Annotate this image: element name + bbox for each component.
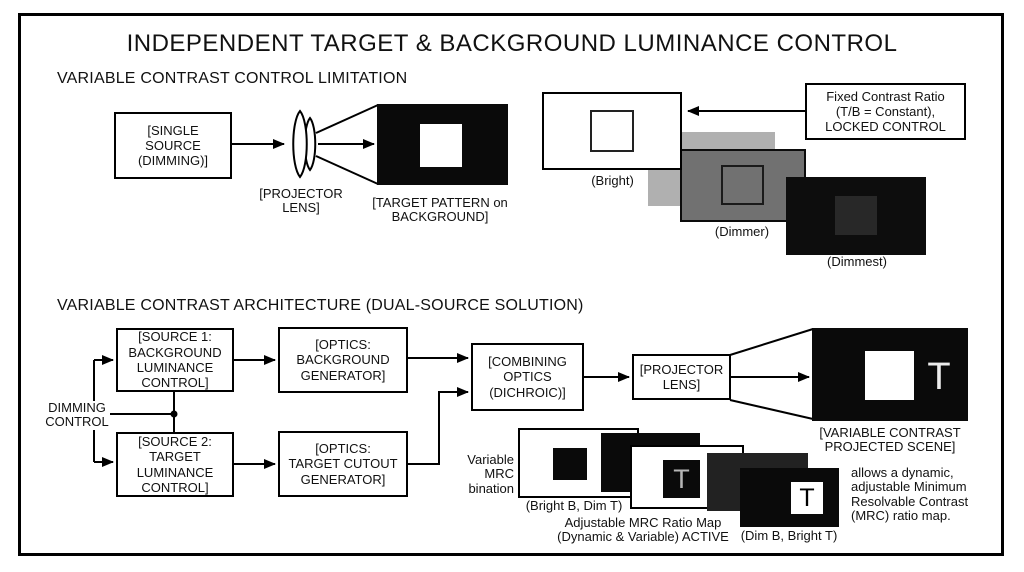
single-source-box: [SINGLE SOURCE (DIMMING)] — [114, 112, 232, 179]
bright-label: (Bright) — [575, 174, 650, 188]
optics-target-box: [OPTICS: TARGET CUTOUT GENERATOR] — [278, 431, 408, 497]
combining-optics-box: [COMBINING OPTICS (DICHROIC)] — [471, 343, 584, 411]
dimmest-square — [835, 196, 877, 235]
bright-b-dim-t-label: (Bright B, Dim T) — [518, 499, 630, 513]
projected-scene-label: [VARIABLE CONTRAST PROJECTED SCENE] — [810, 426, 970, 455]
dimmer-label: (Dimmer) — [704, 225, 780, 239]
dim-b-bright-t-label: (Dim B, Bright T) — [735, 529, 843, 543]
projected-scene-t: T — [922, 358, 956, 396]
optics-background-box: [OPTICS: BACKGROUND GENERATOR] — [278, 327, 408, 393]
mrc-frame-e-square: T — [791, 482, 823, 514]
source2-box: [SOURCE 2: TARGET LUMINANCE CONTROL] — [116, 432, 234, 497]
fixed-contrast-ratio-box: Fixed Contrast Ratio (T/B = Constant), L… — [805, 83, 966, 140]
dimmer-square — [721, 165, 764, 205]
junction-dot — [171, 411, 178, 418]
projector-lens-box: [PROJECTOR LENS] — [632, 354, 731, 400]
mrc-frame-a-square — [553, 448, 587, 480]
target-pattern-label: [TARGET PATTERN on BACKGROUND] — [368, 196, 512, 225]
dimming-control-label: DIMMING CONTROL — [44, 401, 110, 430]
mrc-map-label: Adjustable MRC Ratio Map (Dynamic & Vari… — [548, 516, 738, 545]
variable-mrc-label: Variable MRC bination — [452, 453, 514, 496]
projected-scene-square — [865, 351, 914, 400]
mrc-frame-e — [740, 468, 839, 527]
projector-lens-icon — [293, 111, 315, 177]
diagram-canvas: INDEPENDENT TARGET & BACKGROUND LUMINANC… — [0, 0, 1024, 572]
bright-square — [590, 110, 634, 152]
target-pattern-square — [420, 124, 462, 167]
mrc-note: allows a dynamic, adjustable Minimum Res… — [851, 466, 983, 523]
dimmest-label: (Dimmest) — [816, 255, 898, 269]
mrc-frame-c-t: T — [663, 460, 700, 498]
source1-box: [SOURCE 1: BACKGROUND LUMINANCE CONTROL] — [116, 328, 234, 392]
projector-lens-label: [PROJECTOR LENS] — [246, 187, 356, 216]
